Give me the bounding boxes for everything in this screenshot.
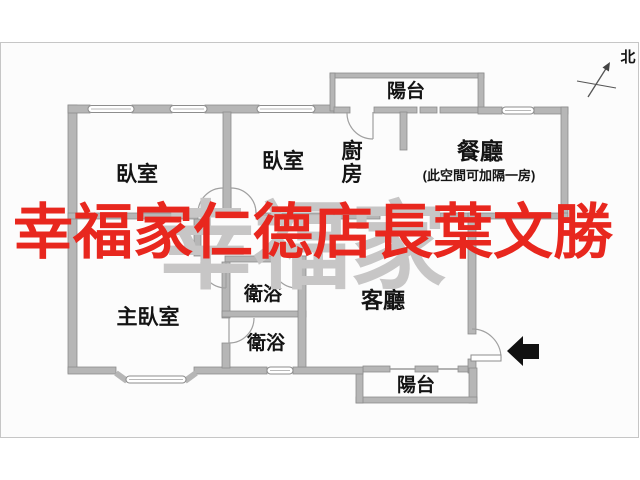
entry-door-leaf [471,355,501,361]
label-bedroom2: 臥室 [262,149,304,173]
north-label: 北 [620,49,635,66]
label-dining: 餐廳 [457,138,503,164]
label-bathroom2: 衛浴 [246,331,286,354]
label-bedroom1: 臥室 [116,162,158,186]
label-kitchen-line1: 廚 [342,139,363,163]
label-dining-note: (此空間可加隔一房) [423,168,536,183]
label-bathroom1: 衛浴 [243,282,283,305]
label-living: 客廳 [361,288,405,313]
label-kitchen-line2: 房 [342,162,363,186]
label-master-bedroom: 主臥室 [117,305,180,329]
plan-frame [1,43,639,438]
label-balcony-bottom: 陽台 [397,373,435,396]
floor-plan-drawing: 北 臥室 臥室 廚 房 餐廳 (此空間可加隔一房) 主臥室 衛浴 衛浴 客廳 陽… [0,0,640,480]
label-balcony-top: 陽台 [387,79,425,102]
floor-plan-screenshot: 北 臥室 臥室 廚 房 餐廳 (此空間可加隔一房) 主臥室 衛浴 衛浴 客廳 陽… [0,0,640,480]
